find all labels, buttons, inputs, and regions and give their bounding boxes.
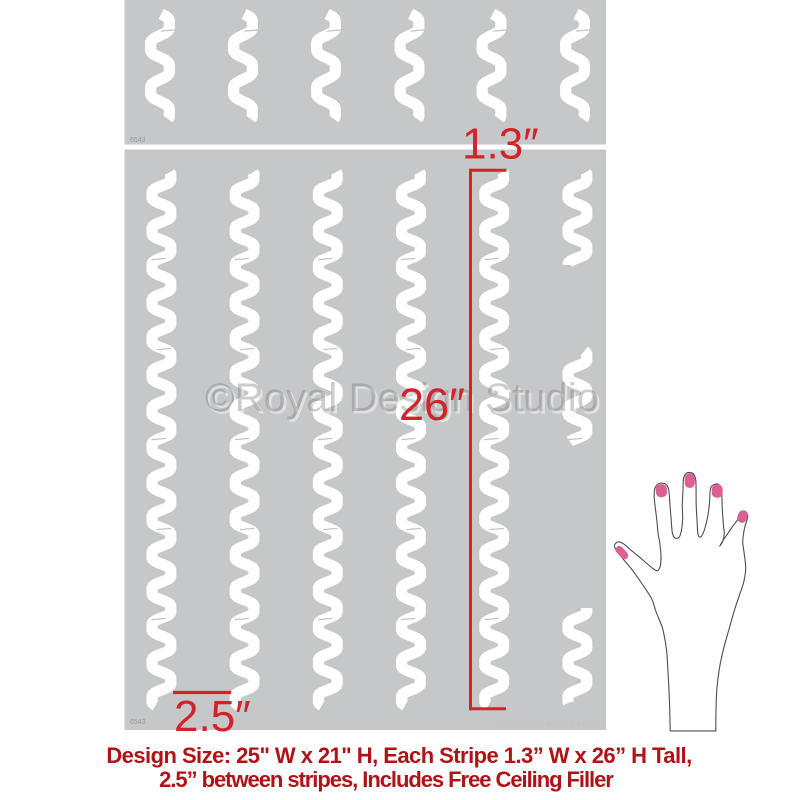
- svg-text:26″: 26″: [399, 379, 465, 430]
- svg-text:1.3″: 1.3″: [462, 120, 539, 169]
- svg-text:2.5” between stripes, Includes: 2.5” between stripes, Includes Free Ceil…: [159, 767, 614, 792]
- svg-text:6543: 6543: [130, 137, 146, 144]
- svg-text:Design Size: 25" W x 21" H, Ea: Design Size: 25" W x 21" H, Each Stripe …: [106, 743, 691, 768]
- svg-text:©2024 ROYAL DESIGN STUDIO: ©2024 ROYAL DESIGN STUDIO: [497, 720, 604, 728]
- svg-text:6543: 6543: [130, 719, 146, 726]
- svg-text:2.5″: 2.5″: [174, 692, 251, 741]
